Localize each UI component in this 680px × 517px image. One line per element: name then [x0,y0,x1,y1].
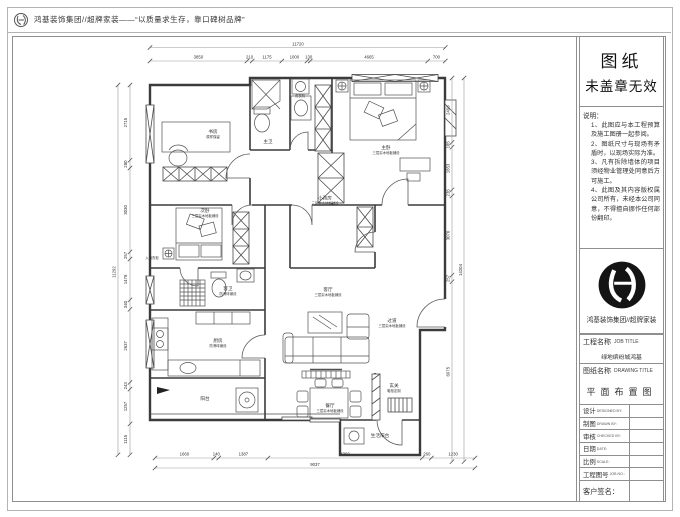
note-item: 3、凡有拆除墙体的项目须经物业管理处同意后方可施工。 [583,158,660,186]
room-note: 三层实木地板铺设 [191,213,219,218]
scale-label-en: SCALE: [597,460,610,464]
drain-flag-symbol [157,387,170,403]
kitchen-appliances [196,312,250,324]
job-no-label-en: JOB NO.: [610,472,625,476]
study-desk [162,122,230,166]
study-door [226,154,250,178]
kitchen-window [146,320,154,368]
room-label: 阳台 [200,395,210,402]
designer-value-cell [629,405,663,417]
dimension-value: 1653 [446,163,451,173]
drafter-row: 制图DRAWN BY: [580,417,663,430]
room-label: 主卧 [381,144,391,151]
room-label: 厨房 [213,337,223,344]
room-note: 原样保留 [206,134,220,139]
company-logo [596,259,648,311]
dimension-value: 1478 [123,274,128,284]
dimension-value: 1387 [239,452,249,457]
dimension-value: 2498 [446,105,451,115]
coffee-table [308,312,342,333]
dimension-overall: 9037 [310,462,320,467]
second-bedroom-wardrobe [233,212,249,264]
date-label-en: DATE: [597,447,607,451]
customer-sign-cell [629,481,663,502]
drawing-label-en: DRAWING TITLE [614,368,653,374]
dimension-value: 257 [123,251,128,259]
checker-label-en: CHECKED BY: [597,434,621,438]
room-note: 鞋柜定制 [387,388,401,393]
dimension-value: 4360 [340,452,350,457]
customer-sign-label: 客户签名： [580,481,629,502]
room-note: 防滑砖铺设 [210,343,228,348]
dimension-value: 260 [423,452,431,457]
logo-section: 鸿基装饰集团//超牌家装 [580,249,663,334]
job-value: 绿地缤纷城鸿基 [580,349,663,364]
designer-label: 设计 [583,406,596,415]
toilet [254,107,270,132]
room-label: 小孩房 [318,195,332,202]
entry-door-opening [443,299,447,327]
job-title-row: 工程名称 JOB TITLE [580,334,663,349]
dimension-value: 3850 [194,55,204,60]
stamp-line2: 未盖章无效 [585,75,658,95]
dimension-overall: 11292 [112,266,117,278]
room-note: 三层实木地板铺设 [314,292,342,297]
dimension-overall: 14204 [458,263,463,276]
sheet-header: 鸿基装饰集团//超牌家装——“以质量求生存，靠口碑树品牌” [7,7,671,33]
checker-row: 审核CHECKED BY: [580,429,663,442]
fixture-label: 洗衣机 [295,93,306,98]
kids-room-top-door [292,205,312,225]
header-logo-icon [13,12,29,28]
bay-window [445,100,456,136]
room-label: 次卧 [200,207,210,214]
room-label: 过道 [387,317,397,324]
water-heater [388,398,412,412]
kitchen-counter [152,318,260,376]
master-bed [350,80,416,140]
validity-stamp: 图纸 未盖章无效 [580,36,663,107]
job-no-label: 工程图号 [583,470,609,479]
interior-walls-layer [150,78,445,420]
company-name: 鸿基装饰集团//超牌家装 [587,314,657,324]
drafter-label-en: DRAWN BY: [597,422,617,426]
dimension-value: 4665 [364,55,374,60]
room-note: 防滑砖铺设 [220,291,238,296]
vanity-sink [291,96,311,120]
room-label: 餐厅 [325,402,335,409]
dimension-value: 185 [446,141,451,149]
date-row: 日期DATE: [580,442,663,455]
dimension-value: 1175 [262,55,272,60]
drawing-value: 平面布置图 [580,378,663,404]
scale-row: 比例SCALE: [580,455,663,468]
master-bath-door [290,132,308,150]
room-label: 客卫 [223,285,233,292]
room-note: 三层实木地板铺设 [316,408,344,413]
dimension-value: 210 [246,55,254,60]
dimension-value: 257 [446,274,451,282]
room-label: 生活阳台 [371,432,390,439]
dresser [400,158,430,181]
drafter-label: 制图 [583,419,596,428]
room-labels-layer: 书房原样保留主卫主卧三层实木地板铺设次卧三层实木地板铺设小孩房三层实木地板铺设客… [145,93,406,439]
dimension-value: 1115 [123,434,128,444]
signature-grid: 设计DESIGNED BY: 制图DRAWN BY: 审核CHECKED BY:… [580,404,663,480]
stamp-line1: 图纸 [601,47,643,72]
dimension-value: 3030 [123,205,128,215]
kitchen-door [242,335,265,358]
dimension-value: 6975 [446,366,451,376]
drawing-sheet: 鸿基装饰集团//超牌家装——“以质量求生存，靠口碑树品牌” [0,0,680,517]
room-label: 主卫 [263,138,273,144]
dimension-overall: 11720 [292,42,304,47]
fixture-label: 入墙衣柜 [145,255,159,260]
dimension-value: 280 [123,160,128,168]
job-label-en: JOB TITLE [614,339,639,345]
notes-section: 说明： 1、此图应与本工程预算及施工图册一起参阅。 2、图纸尺寸与现场有矛盾时，… [580,107,663,249]
master-door [382,179,408,205]
note-item: 4、此图及其内容版权属公司所有，未经本公司同意，不得擅自挪作任何部份翻印。 [583,186,660,223]
note-item: 1、此图应与本工程预算及施工图册一起参阅。 [583,121,660,140]
drawing-label: 图纸名称 [583,366,611,376]
dimension-value: 130 [305,55,313,60]
dimension-value: 140 [213,452,221,457]
master-wardrobe [315,85,331,151]
dimension-value: 1257 [123,401,128,411]
dimension-value: 2715 [123,117,128,127]
dimension-value: 235 [446,189,451,197]
room-label: 玄关 [389,382,399,389]
sofa [283,314,369,363]
guest-bath-door [180,268,198,286]
job-no-row: 工程图号JOB NO.: [580,467,663,480]
study-cabinet [163,167,227,181]
utility-sink [344,428,364,444]
job-no-value-cell [629,468,663,480]
nightstand-left [336,80,348,92]
second-nightstand [163,248,174,259]
room-label: 书房 [208,128,218,135]
notes-title: 说明： [583,110,660,120]
shoe-cabinet [372,374,380,420]
room-note: 三层实木地板铺设 [311,201,339,206]
dimension-value: 2637 [123,340,128,350]
washing-machine [292,79,309,94]
windows-cabinets-layer [146,75,456,423]
balcony-washer [236,388,258,412]
dimension-value: 1000 [290,55,300,60]
designer-row: 设计DESIGNED BY: [580,404,663,417]
dimension-value: 340 [123,300,128,308]
shower [252,80,280,109]
kids-room-wardrobe [357,207,373,247]
dimension-value: 700 [433,55,441,60]
master-top-window [352,75,438,82]
job-label: 工程名称 [583,337,611,347]
entry-door [417,299,445,327]
scale-value-cell [629,456,663,468]
date-label: 日期 [583,444,596,453]
customer-sign-row: 客户签名： [580,480,663,502]
scale-label: 比例 [583,457,596,466]
guest-shower [180,280,205,306]
drawing-title-row: 图纸名称 DRAWING TITLE [580,364,663,378]
guest-sink [237,269,254,282]
room-note: 三层实木地板铺设 [378,323,406,328]
checker-label: 审核 [583,432,596,441]
floor-plan-svg: 3850210117510001304665700117201660140138… [105,38,567,505]
checker-value-cell [629,430,663,442]
dimension-value: 1660 [180,452,190,457]
dimension-value: 3070 [446,230,451,240]
dimension-value: 243 [123,382,128,390]
drafter-value-cell [629,418,663,430]
room-note: 三层实木地板铺设 [372,150,400,155]
study-window [146,105,154,163]
date-value-cell [629,443,663,455]
dimension-value: 1230 [448,452,458,457]
designer-label-en: DESIGNED BY: [597,409,622,413]
tv-cabinet [302,370,350,379]
room-label: 客厅 [323,286,333,293]
note-item: 2、图纸尺寸与现场有矛盾时，以现场实际为准。 [583,140,660,159]
title-block: 图纸 未盖章无效 说明： 1、此图应与本工程预算及施工图册一起参阅。 2、图纸尺… [576,36,666,502]
guest-bath-window [146,276,154,304]
company-slogan: 鸿基装饰集团//超牌家装——“以质量求生存，靠口碑树品牌” [34,14,245,25]
